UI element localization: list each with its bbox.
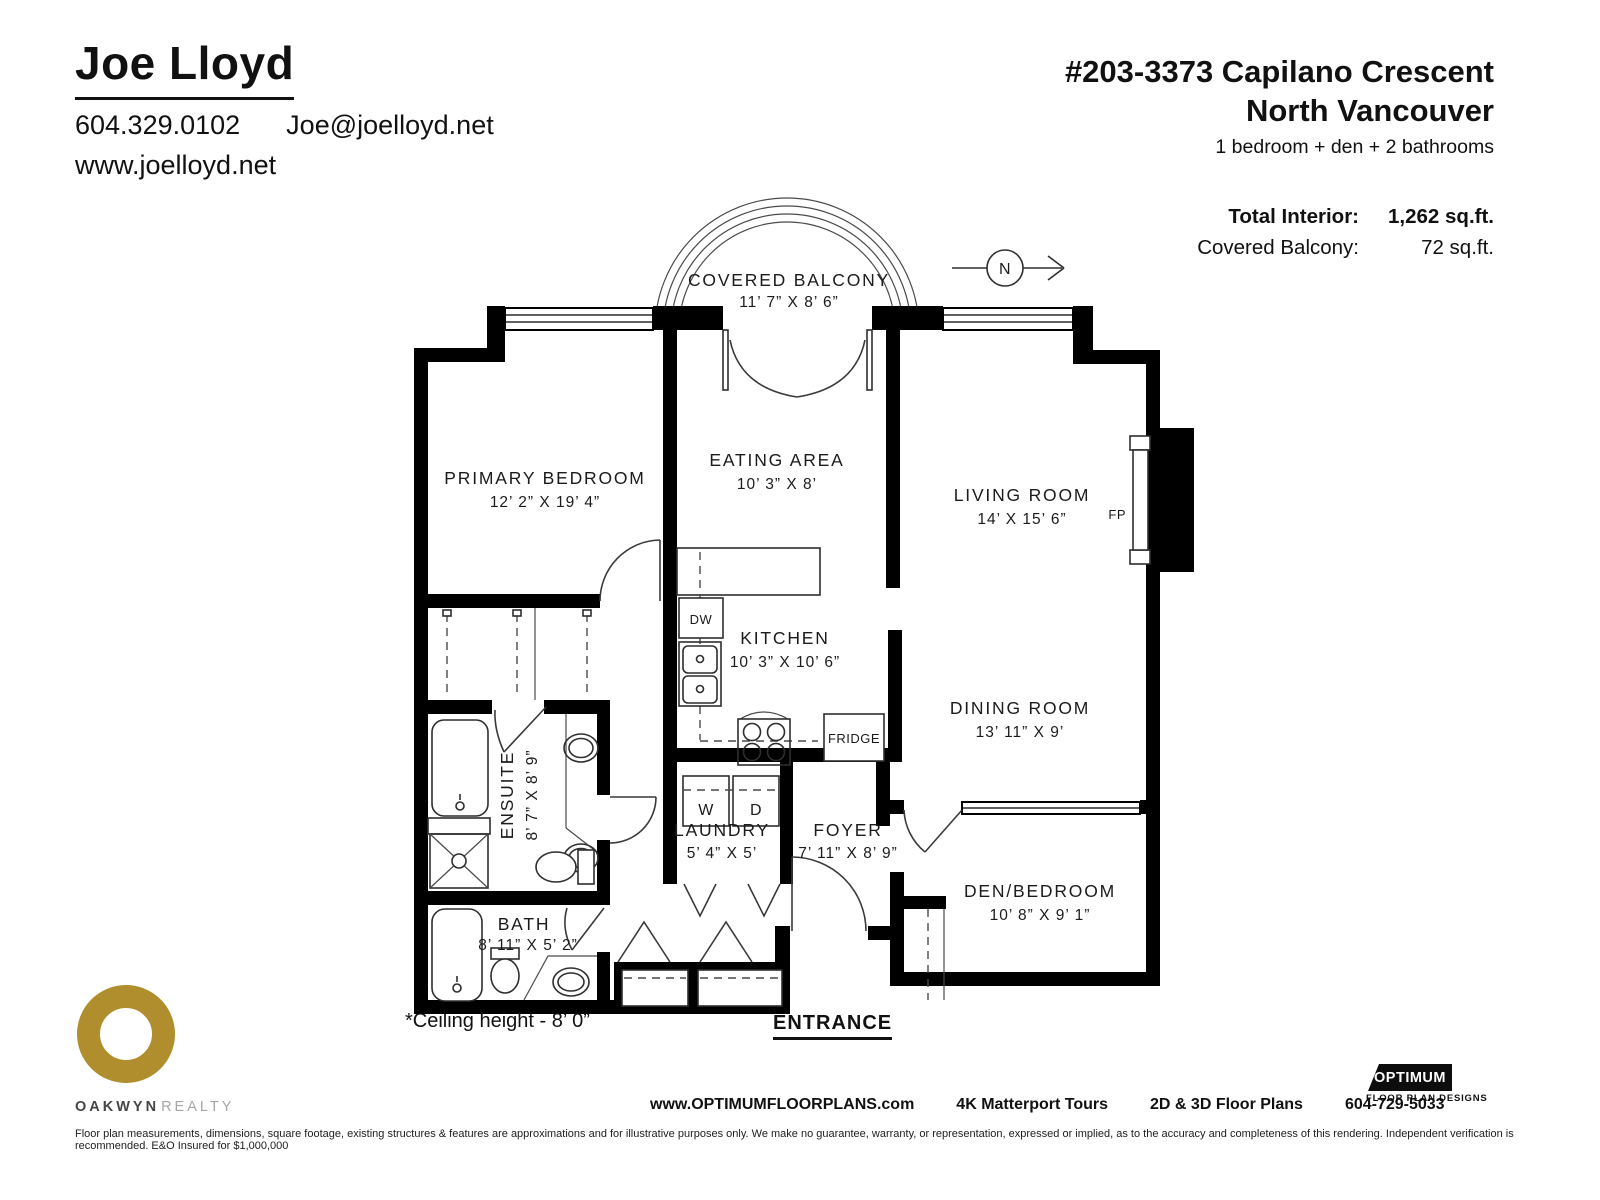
oakwyn-suffix: REALTY bbox=[161, 1099, 234, 1115]
den-closet bbox=[928, 909, 944, 1000]
living-room-dims: 14’ X 15’ 6” bbox=[977, 511, 1066, 528]
den-bedroom-dims: 10’ 8” X 9’ 1” bbox=[990, 907, 1091, 924]
footer-links: www.OPTIMUMFLOORPLANS.com 4K Matterport … bbox=[650, 1096, 1445, 1114]
ensuite-toilet bbox=[536, 852, 576, 882]
hall-closet-bifold-right bbox=[700, 922, 752, 962]
fireplace-label: FP bbox=[1108, 507, 1126, 522]
kitchen-peninsula-counter bbox=[677, 548, 820, 595]
ensuite-toilet-tank bbox=[578, 850, 594, 884]
eating-area-dims: 10’ 3” X 8’ bbox=[737, 476, 817, 493]
fireplace: FP bbox=[1108, 428, 1194, 572]
bath-dims: 8’ 11” X 5’ 2” bbox=[478, 937, 578, 954]
dining-room-dims: 13’ 11” X 9’ bbox=[976, 724, 1065, 741]
dishwasher-label: DW bbox=[690, 612, 713, 627]
primary-bedroom-label: PRIMARY BEDROOM bbox=[444, 468, 645, 488]
foyer-dims: 7’ 11” X 8’ 9” bbox=[798, 845, 898, 862]
north-arrow-icon: N bbox=[952, 250, 1064, 286]
ensuite-door bbox=[504, 707, 546, 752]
eating-area-label: EATING AREA bbox=[709, 450, 844, 470]
dryer-label: D bbox=[750, 802, 762, 819]
laundry-fixtures: W D bbox=[683, 776, 779, 826]
floor-plans-service: 2D & 3D Floor Plans bbox=[1150, 1096, 1303, 1114]
dining-room-label: DINING ROOM bbox=[950, 698, 1090, 718]
balcony-door-right-arc bbox=[797, 340, 865, 397]
laundry-dims: 5’ 4” X 5’ bbox=[687, 845, 758, 862]
laundry-label: LAUNDRY bbox=[674, 820, 770, 840]
washer-label: W bbox=[698, 802, 714, 819]
oakwyn-name: OAKWYN bbox=[75, 1099, 159, 1115]
fridge-label: FRIDGE bbox=[828, 731, 880, 746]
optimum-website: www.OPTIMUMFLOORPLANS.com bbox=[650, 1096, 914, 1114]
balcony-door-left-arc bbox=[730, 340, 797, 397]
kitchen-label: KITCHEN bbox=[740, 628, 829, 648]
ensuite-label: ENSUITE bbox=[497, 751, 517, 839]
kitchen-dims: 10’ 3” X 10’ 6” bbox=[730, 654, 840, 671]
oakwyn-wordmark: OAKWYNREALTY bbox=[75, 1099, 234, 1115]
entrance-storage bbox=[614, 962, 790, 1014]
balcony-door-right-leaf bbox=[867, 330, 872, 390]
den-door bbox=[925, 810, 962, 852]
den-bedroom-label: DEN/BEDROOM bbox=[964, 881, 1116, 901]
optimum-logo-subtitle: FLOOR PLAN DESIGNS bbox=[1366, 1093, 1488, 1104]
bath-toilet bbox=[491, 959, 519, 993]
optimum-logo: OPTIMUM bbox=[1368, 1064, 1452, 1091]
optimum-logo-title: OPTIMUM bbox=[1374, 1070, 1446, 1086]
bath-label: BATH bbox=[498, 914, 551, 934]
living-room-label: LIVING ROOM bbox=[954, 485, 1090, 505]
bedroom-closets bbox=[443, 608, 591, 700]
laundry-bifold-right bbox=[748, 884, 780, 916]
foyer-label: FOYER bbox=[813, 820, 882, 840]
balcony-door-left-leaf bbox=[723, 330, 728, 390]
ensuite-dims: 8’ 7” X 8’ 9” bbox=[524, 749, 541, 840]
north-label: N bbox=[999, 261, 1011, 278]
laundry-bifold-left bbox=[684, 884, 716, 916]
oakwyn-logo bbox=[77, 985, 175, 1083]
entrance-label: ENTRANCE bbox=[773, 1012, 892, 1040]
covered-balcony-dims: 11’ 7” X 8’ 6” bbox=[739, 294, 839, 311]
primary-bedroom-dims: 12’ 2” X 19’ 4” bbox=[490, 494, 600, 511]
bath-tub bbox=[432, 909, 482, 1001]
disclaimer-text: Floor plan measurements, dimensions, squ… bbox=[75, 1128, 1545, 1152]
covered-balcony-label: COVERED BALCONY bbox=[688, 270, 890, 290]
matterport-tours: 4K Matterport Tours bbox=[956, 1096, 1108, 1114]
hall-closet-bifold-left bbox=[618, 922, 670, 962]
floor-plan-page: Joe Lloyd 604.329.0102Joe@joelloyd.net w… bbox=[0, 0, 1600, 1200]
ceiling-height-note: *Ceiling height - 8’ 0” bbox=[405, 1010, 590, 1033]
